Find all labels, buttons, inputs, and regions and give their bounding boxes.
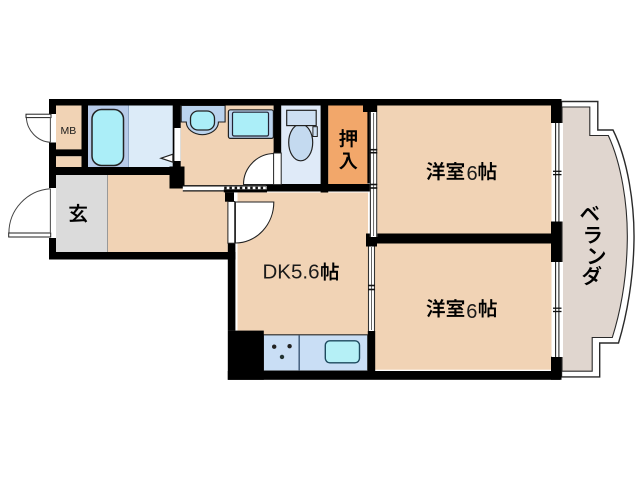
- svg-text:MB: MB: [61, 125, 77, 137]
- svg-text:DK5.6: DK5.6: [263, 260, 320, 283]
- svg-text:6: 6: [466, 301, 477, 323]
- svg-text:6: 6: [467, 163, 478, 185]
